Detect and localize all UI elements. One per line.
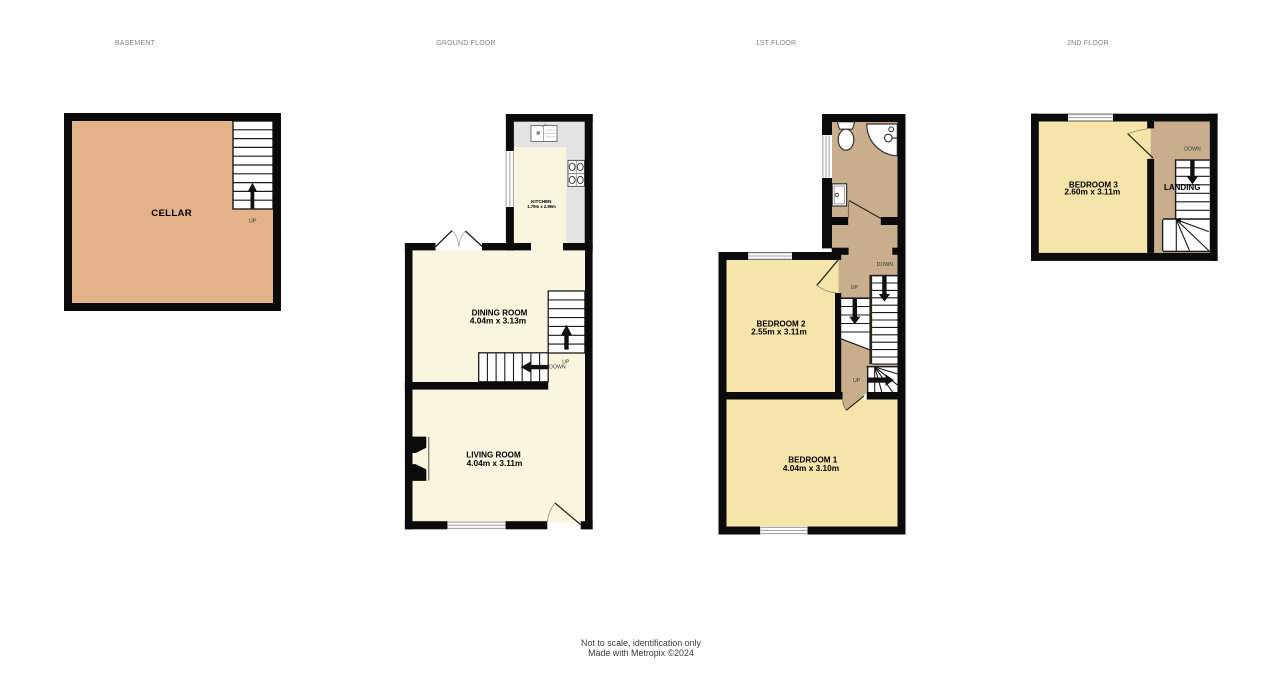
svg-text:2.60m x 3.11m: 2.60m x 3.11m [1064,186,1120,196]
svg-text:DOWN: DOWN [549,365,566,371]
svg-text:4.04m x 3.13m: 4.04m x 3.13m [470,315,526,325]
svg-text:UP: UP [249,219,257,225]
svg-text:Made with Metropix ©2024: Made with Metropix ©2024 [588,648,694,658]
svg-text:2.55m x 3.11m: 2.55m x 3.11m [751,327,807,337]
svg-text:1ST FLOOR: 1ST FLOOR [756,40,797,47]
svg-text:CELLAR: CELLAR [151,208,192,219]
svg-text:2ND FLOOR: 2ND FLOOR [1067,40,1109,47]
svg-text:1.79m x 2.89m: 1.79m x 2.89m [527,204,556,209]
svg-text:Not to scale, identification o: Not to scale, identification only [581,638,701,648]
svg-text:BASEMENT: BASEMENT [115,40,156,47]
svg-text:UP: UP [851,285,859,291]
svg-text:LANDING: LANDING [1164,183,1200,192]
svg-text:UP: UP [853,378,861,384]
svg-text:DOWN: DOWN [877,262,894,268]
svg-text:4.04m x 3.10m: 4.04m x 3.10m [783,463,839,473]
svg-text:GROUND FLOOR: GROUND FLOOR [436,40,496,47]
svg-text:4.04m x 3.11m: 4.04m x 3.11m [467,458,523,468]
svg-text:DOWN: DOWN [1184,146,1201,152]
